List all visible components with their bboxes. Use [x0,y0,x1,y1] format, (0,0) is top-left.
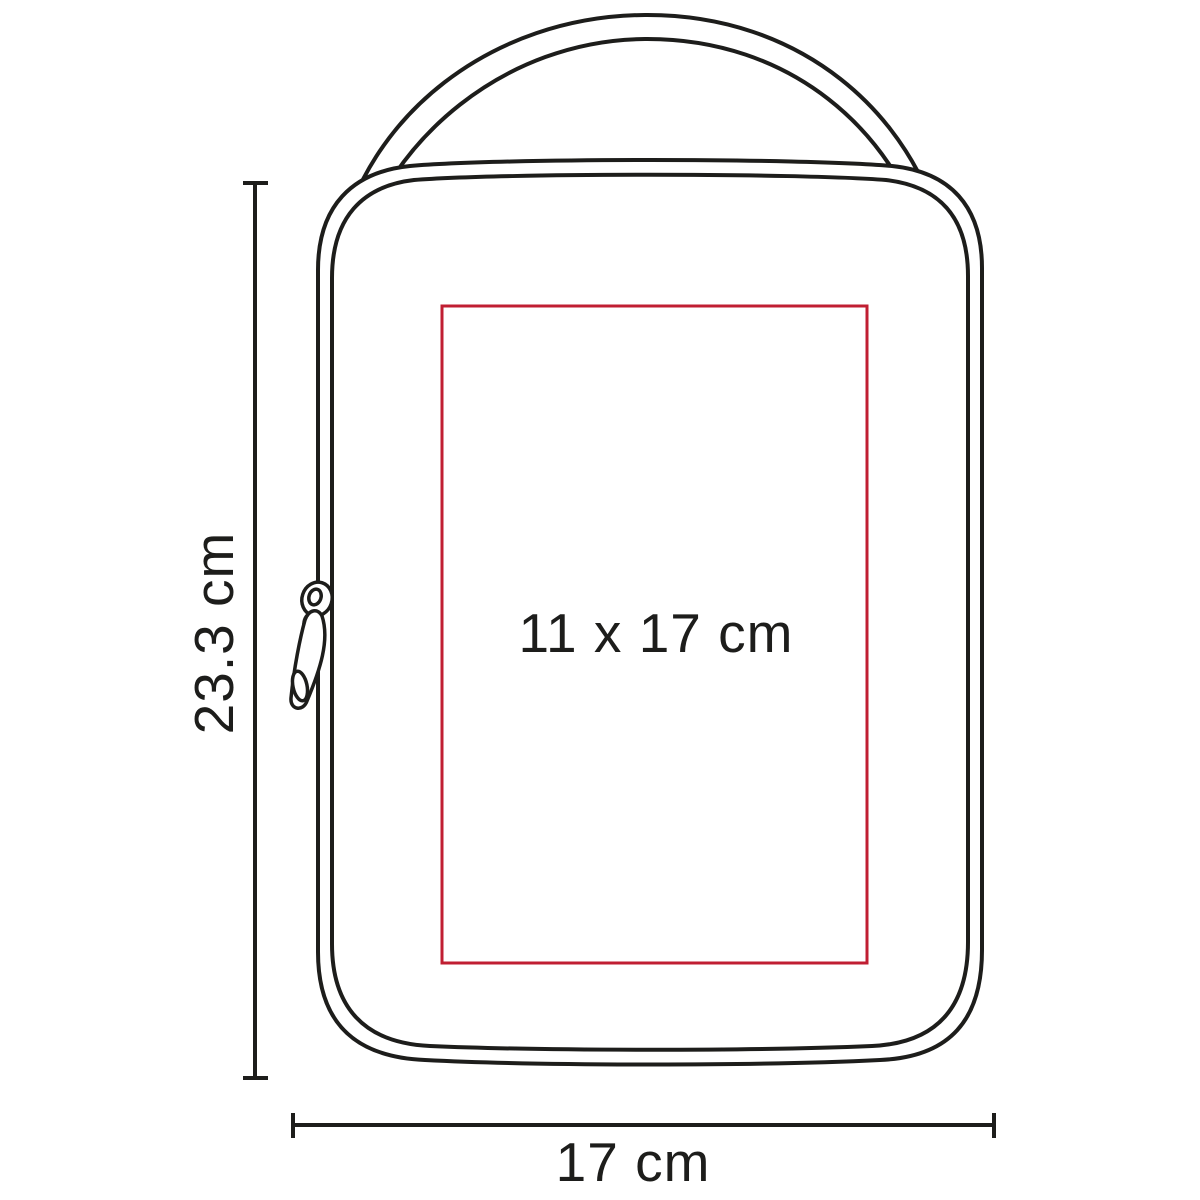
height-dimension: 23.3 cm [183,183,268,1078]
width-dimension: 17 cm [293,1113,994,1193]
width-dimension-label: 17 cm [556,1131,711,1193]
bag-drawing [290,15,982,1065]
diagram-canvas: 23.3 cm 17 cm 11 x 17 cm [0,0,1200,1200]
print-area-label: 11 x 17 cm [519,602,794,664]
height-dimension-label: 23.3 cm [183,532,245,735]
bag-dimension-diagram: 23.3 cm 17 cm 11 x 17 cm [0,0,1200,1200]
